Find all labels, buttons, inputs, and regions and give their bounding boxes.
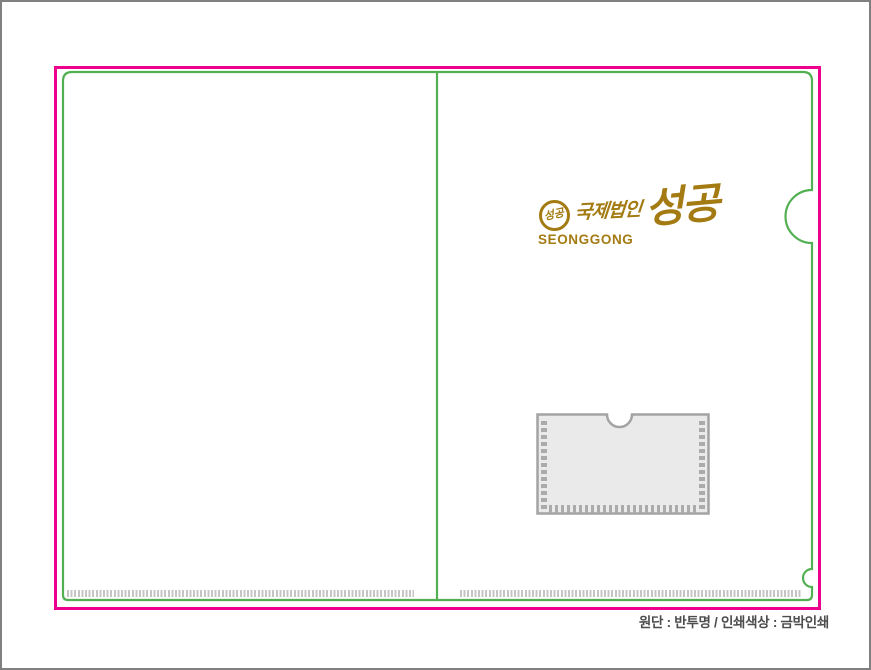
brand-logo: 성공 국제법인 성공 SEONGGONG bbox=[538, 192, 716, 252]
pocket-stitch-left bbox=[541, 421, 547, 509]
pocket-stitch-bottom bbox=[549, 505, 697, 513]
template-artboard: 성공 국제법인 성공 SEONGGONG 원단 : 반투명 / 인쇄색상 : 금… bbox=[0, 0, 871, 670]
pocket-shape-with-thumb-notch bbox=[538, 415, 709, 514]
business-card-pocket bbox=[536, 412, 710, 516]
weld-serration-left bbox=[67, 590, 414, 597]
print-spec-note: 원단 : 반투명 / 인쇄색상 : 금박인쇄 bbox=[639, 611, 829, 631]
logo-calligraphy-small: 국제법인 bbox=[574, 194, 643, 224]
logo-seal-text: 성공 bbox=[543, 208, 565, 223]
pocket-outline bbox=[536, 412, 710, 516]
folder-outline-drawing bbox=[2, 2, 871, 670]
pocket-stitch-right bbox=[699, 421, 705, 509]
weld-serration-right bbox=[460, 590, 802, 597]
logo-calligraphy-large: 성공 bbox=[643, 181, 720, 233]
logo-seal-icon: 성공 bbox=[539, 200, 570, 231]
logo-romanized-name: SEONGGONG bbox=[538, 232, 633, 247]
